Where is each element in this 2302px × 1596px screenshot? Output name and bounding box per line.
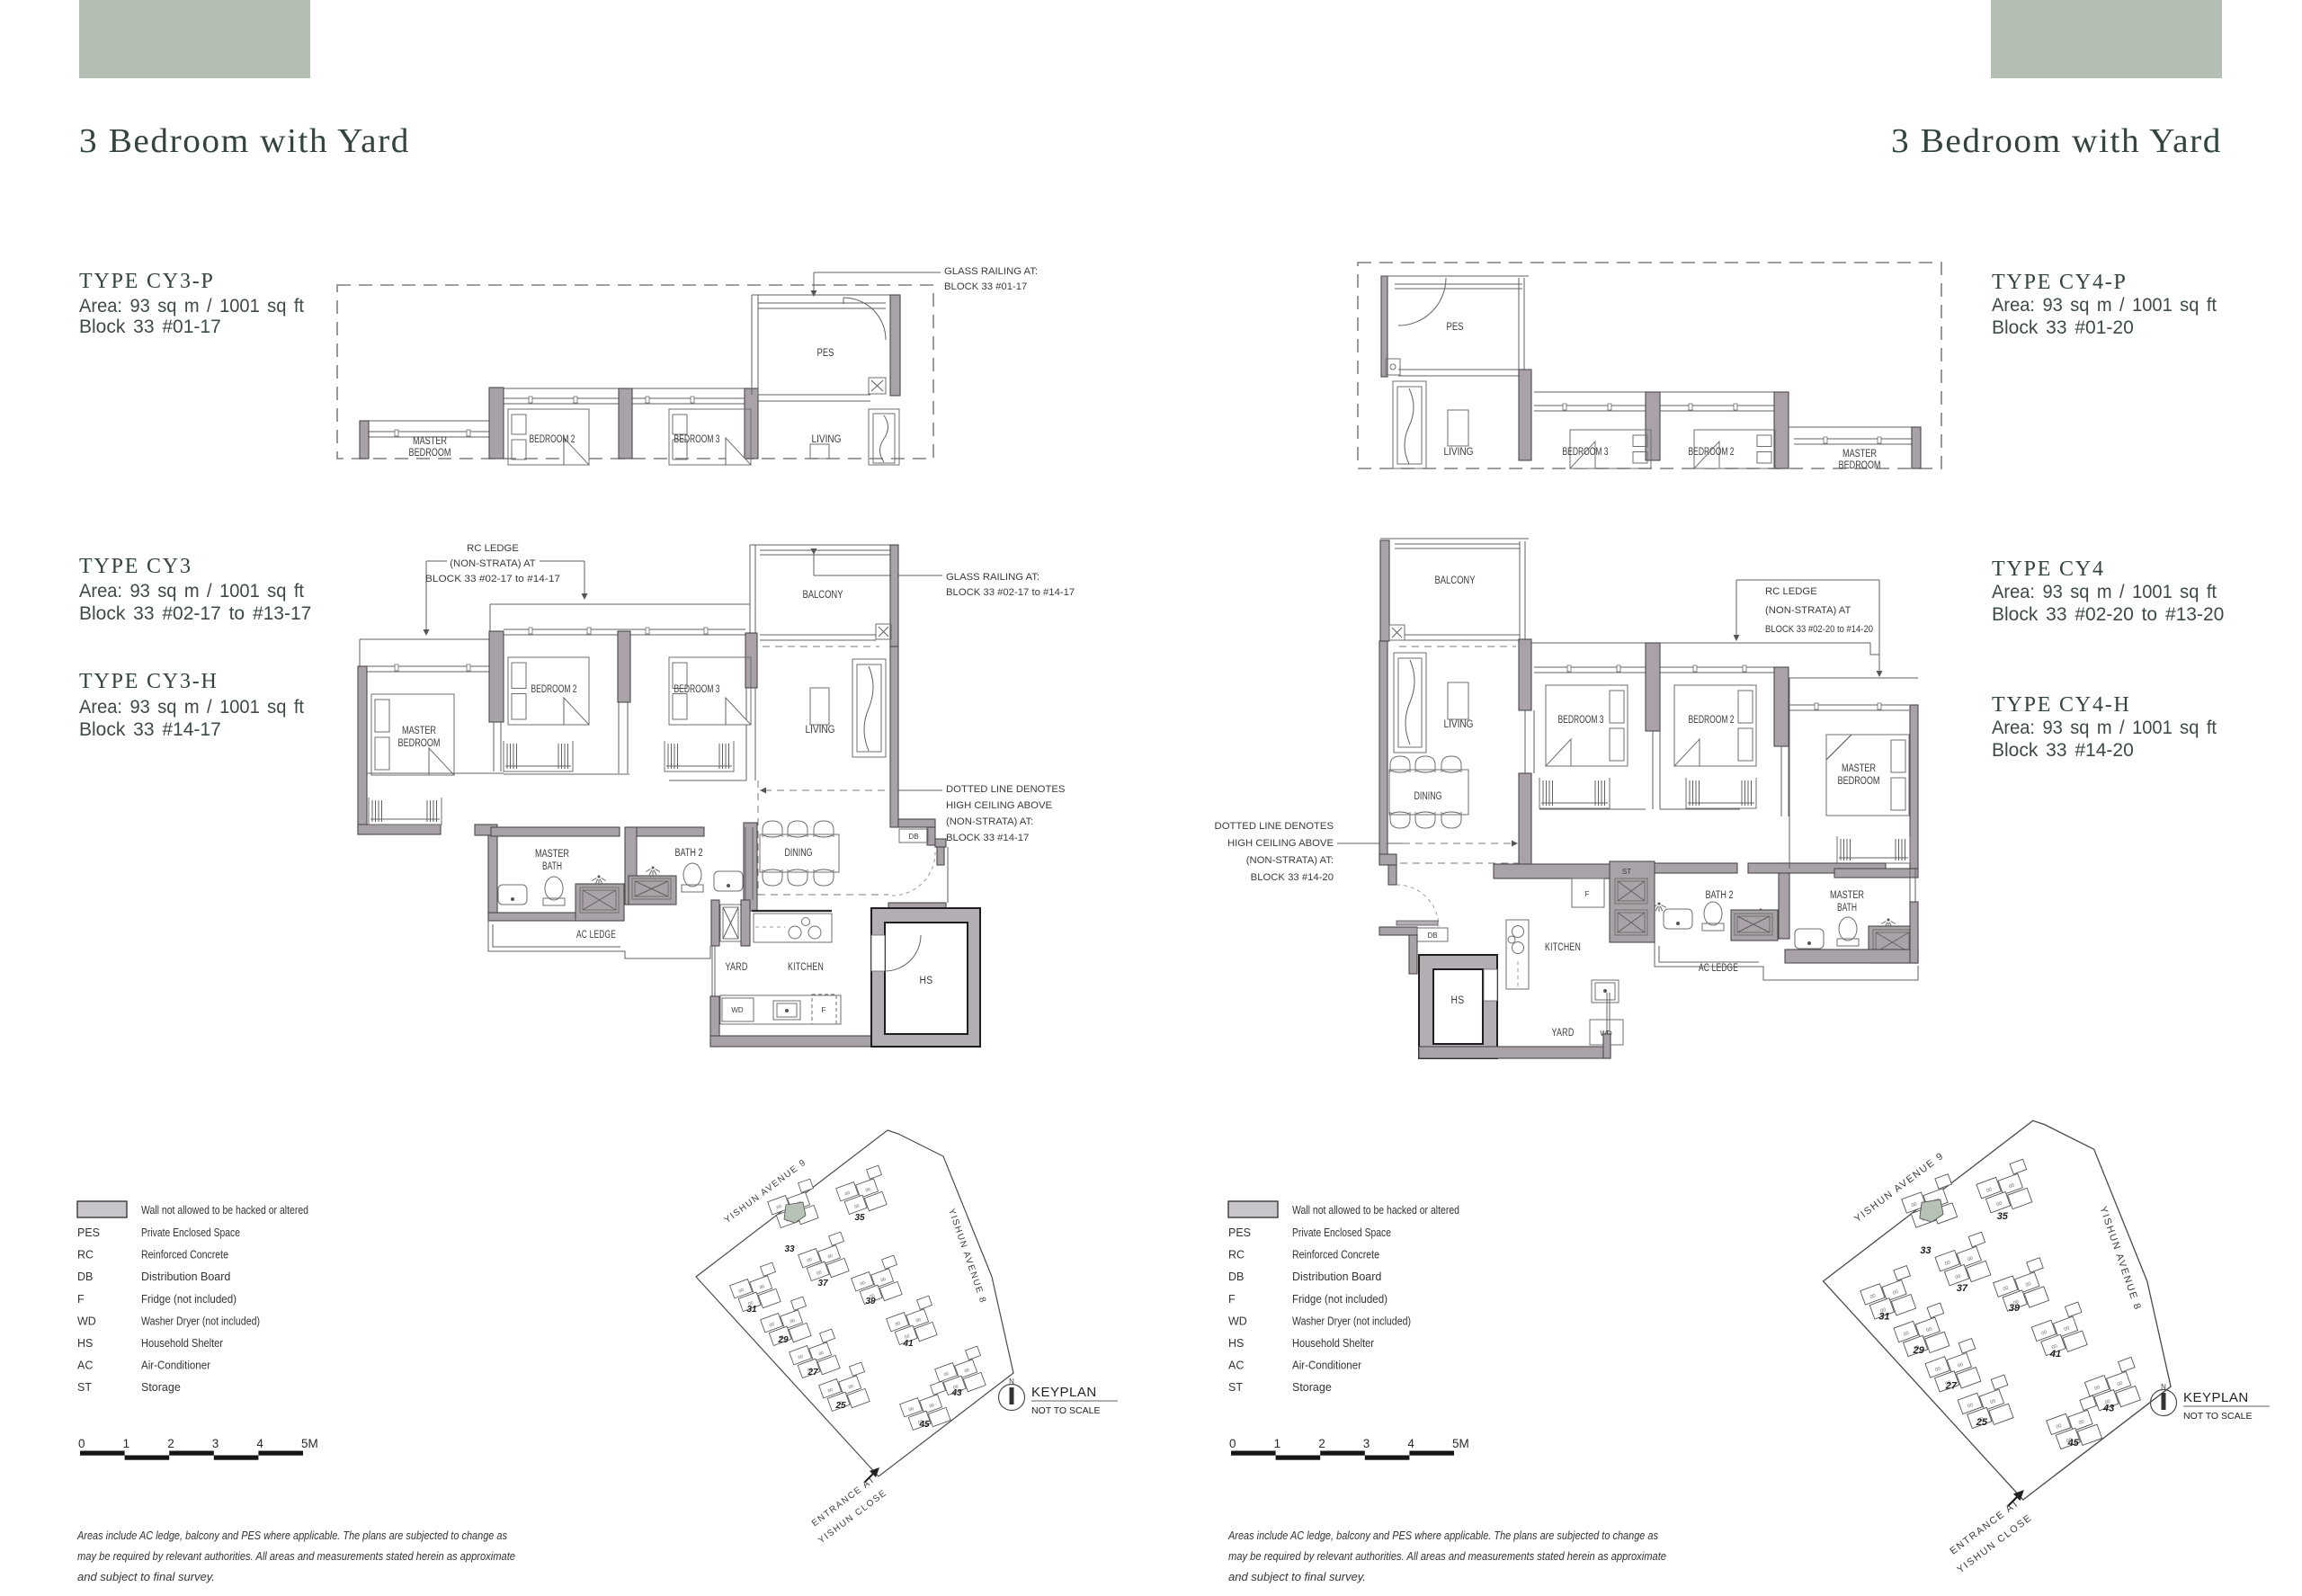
svg-text:PES: PES: [77, 1226, 100, 1239]
svg-text:Reinforced Concrete: Reinforced Concrete: [1292, 1249, 1379, 1262]
svg-text:MASTER: MASTER: [535, 849, 569, 860]
svg-text:DOTTED LINE DENOTES: DOTTED LINE DENOTES: [946, 784, 1066, 795]
svg-text:KITCHEN: KITCHEN: [788, 962, 824, 973]
svg-text:BEDROOM 2: BEDROOM 2: [1689, 447, 1735, 458]
svg-text:BEDROOM 3: BEDROOM 3: [674, 684, 720, 695]
svg-text:DB: DB: [1427, 932, 1437, 940]
svg-text:PES: PES: [1228, 1226, 1251, 1239]
svg-text:F: F: [77, 1293, 85, 1306]
svg-text:MASTER: MASTER: [402, 726, 436, 736]
svg-text:(NON-STRATA) AT:: (NON-STRATA) AT:: [946, 816, 1033, 827]
svg-text:Block 33 #01-20: Block 33 #01-20: [1992, 317, 2134, 338]
svg-text:33: 33: [784, 1244, 795, 1254]
svg-text:Washer Dryer (not included): Washer Dryer (not included): [141, 1315, 260, 1327]
svg-text:1: 1: [1274, 1437, 1281, 1450]
svg-text:BEDROOM: BEDROOM: [409, 448, 451, 459]
svg-text:Block 33 #01-17: Block 33 #01-17: [79, 317, 221, 337]
svg-text:BEDROOM 2: BEDROOM 2: [530, 434, 575, 445]
svg-text:MASTER: MASTER: [1842, 449, 1877, 459]
svg-text:AC: AC: [1228, 1360, 1244, 1372]
svg-text:Distribution Board: Distribution Board: [141, 1271, 230, 1283]
svg-text:AC: AC: [77, 1360, 93, 1372]
svg-text:39: 39: [865, 1297, 876, 1306]
svg-text:GLASS RAILING AT:: GLASS RAILING AT:: [946, 572, 1039, 583]
svg-text:F: F: [1585, 890, 1590, 898]
svg-text:BLOCK 33 #14-20: BLOCK 33 #14-20: [1251, 872, 1334, 883]
svg-text:F: F: [822, 1006, 826, 1014]
svg-text:35: 35: [854, 1213, 865, 1223]
svg-text:Block 33 #14-17: Block 33 #14-17: [79, 719, 221, 740]
svg-text:Private Enclosed Space: Private Enclosed Space: [141, 1226, 240, 1239]
svg-text:BEDROOM 2: BEDROOM 2: [1689, 715, 1735, 726]
svg-text:HS: HS: [1228, 1337, 1244, 1350]
svg-text:Household Shelter: Household Shelter: [1292, 1337, 1374, 1350]
svg-text:HS: HS: [77, 1337, 93, 1350]
svg-text:25: 25: [834, 1401, 846, 1411]
svg-text:DB: DB: [908, 833, 918, 841]
svg-text:BEDROOM 2: BEDROOM 2: [531, 684, 577, 695]
svg-text:BEDROOM: BEDROOM: [1838, 776, 1880, 787]
svg-text:Area: 93 sq m / 1001 sq ft: Area: 93 sq m / 1001 sq ft: [79, 296, 304, 317]
svg-text:5M: 5M: [1452, 1437, 1469, 1450]
svg-text:BEDROOM: BEDROOM: [1839, 460, 1881, 471]
svg-text:BALCONY: BALCONY: [803, 590, 843, 601]
svg-text:N: N: [2161, 1383, 2166, 1391]
svg-text:AC LEDGE: AC LEDGE: [576, 930, 616, 941]
svg-text:Private Enclosed Space: Private Enclosed Space: [1292, 1226, 1391, 1239]
svg-text:LIVING: LIVING: [806, 725, 835, 736]
svg-text:Wall not allowed to be hacked: Wall not allowed to be hacked or altered: [141, 1204, 308, 1217]
svg-text:43: 43: [950, 1388, 962, 1398]
svg-text:PES: PES: [1447, 322, 1464, 333]
svg-text:BLOCK 33 #02-17 to #14-17: BLOCK 33 #02-17 to #14-17: [946, 587, 1075, 598]
svg-text:Air-Conditioner: Air-Conditioner: [141, 1360, 210, 1372]
svg-text:1: 1: [123, 1437, 130, 1450]
svg-text:BATH 2: BATH 2: [675, 848, 703, 859]
svg-text:TYPE CY4-P: TYPE CY4-P: [1992, 271, 2128, 294]
svg-text:HS: HS: [920, 976, 933, 986]
svg-text:Air-Conditioner: Air-Conditioner: [1292, 1360, 1361, 1372]
svg-text:HIGH CEILING ABOVE: HIGH CEILING ABOVE: [1227, 838, 1334, 849]
svg-text:ST: ST: [1622, 868, 1631, 876]
svg-text:Areas include AC ledge, balcon: Areas include AC ledge, balcony and PES …: [1227, 1529, 1658, 1542]
svg-text:27: 27: [807, 1368, 818, 1378]
svg-text:and subject to final survey.: and subject to final survey.: [77, 1570, 215, 1583]
svg-text:MASTER: MASTER: [413, 436, 447, 447]
svg-text:DB: DB: [77, 1271, 93, 1283]
svg-text:0: 0: [78, 1437, 85, 1450]
svg-text:TYPE CY3-H: TYPE CY3-H: [79, 670, 219, 693]
svg-text:BLOCK 33 #14-17: BLOCK 33 #14-17: [946, 833, 1029, 843]
svg-text:DINING: DINING: [1414, 791, 1442, 802]
svg-text:Area: 93 sq m / 1001 sq ft: Area: 93 sq m / 1001 sq ft: [1992, 582, 2217, 602]
svg-text:Wall not allowed to be hacked: Wall not allowed to be hacked or altered: [1292, 1204, 1459, 1217]
svg-text:BALCONY: BALCONY: [1435, 575, 1476, 586]
svg-text:MASTER: MASTER: [1830, 890, 1864, 901]
svg-text:3: 3: [1363, 1437, 1370, 1450]
svg-text:BATH 2: BATH 2: [1706, 890, 1734, 901]
svg-text:41: 41: [902, 1339, 914, 1349]
svg-text:BLOCK 33 #02-20 to #14-20: BLOCK 33 #02-20 to #14-20: [1765, 624, 1873, 635]
svg-text:3 Bedroom with Yard: 3 Bedroom with Yard: [1891, 122, 2222, 160]
svg-text:ST: ST: [1228, 1381, 1243, 1394]
svg-text:Area: 93 sq m / 1001 sq ft: Area: 93 sq m / 1001 sq ft: [1992, 718, 2217, 738]
svg-text:WD: WD: [1228, 1315, 1247, 1327]
svg-text:LIVING: LIVING: [1444, 447, 1474, 458]
svg-text:TYPE CY3: TYPE CY3: [79, 555, 192, 578]
svg-text:LIVING: LIVING: [1444, 719, 1474, 730]
svg-text:BEDROOM 3: BEDROOM 3: [1558, 715, 1604, 726]
svg-text:RC LEDGE: RC LEDGE: [1765, 586, 1817, 597]
svg-text:Area: 93 sq m / 1001 sq ft: Area: 93 sq m / 1001 sq ft: [1992, 295, 2217, 316]
svg-text:BATH: BATH: [1837, 903, 1857, 914]
svg-text:(NON-STRATA) AT: (NON-STRATA) AT: [450, 558, 535, 569]
svg-text:WD: WD: [731, 1006, 744, 1014]
svg-text:Washer Dryer (not included): Washer Dryer (not included): [1292, 1315, 1411, 1327]
svg-text:3 Bedroom with Yard: 3 Bedroom with Yard: [79, 122, 410, 160]
svg-text:0: 0: [1229, 1437, 1236, 1450]
svg-text:BLOCK 33 #02-17 to #14-17: BLOCK 33 #02-17 to #14-17: [425, 574, 560, 584]
svg-text:YARD: YARD: [726, 962, 748, 973]
svg-text:3: 3: [212, 1437, 219, 1450]
svg-text:RC LEDGE: RC LEDGE: [467, 543, 519, 554]
svg-text:29: 29: [777, 1335, 789, 1345]
svg-text:Areas include AC ledge, balcon: Areas include AC ledge, balcony and PES …: [76, 1529, 507, 1542]
svg-text:4: 4: [1407, 1437, 1414, 1450]
svg-text:may be required by relevant au: may be required by relevant authorities.…: [77, 1549, 515, 1563]
svg-text:BEDROOM: BEDROOM: [398, 738, 441, 749]
svg-text:N: N: [1009, 1378, 1014, 1386]
svg-text:Block 33 #02-17 to #13-17: Block 33 #02-17 to #13-17: [79, 603, 311, 624]
svg-text:ST: ST: [77, 1381, 92, 1394]
svg-text:Fridge (not included): Fridge (not included): [141, 1293, 236, 1306]
svg-text:Block 33 #14-20: Block 33 #14-20: [1992, 740, 2134, 761]
svg-text:(NON-STRATA) AT: (NON-STRATA) AT: [1765, 605, 1851, 616]
svg-text:KITCHEN: KITCHEN: [1545, 942, 1581, 953]
svg-text:may be required by relevant au: may be required by relevant authorities.…: [1228, 1549, 1666, 1563]
svg-text:MASTER: MASTER: [1842, 763, 1876, 774]
svg-text:F: F: [1228, 1293, 1236, 1306]
svg-text:and subject to final survey.: and subject to final survey.: [1228, 1570, 1366, 1583]
svg-text:RC: RC: [1228, 1249, 1245, 1262]
svg-text:KEYPLAN: KEYPLAN: [2183, 1390, 2249, 1405]
svg-text:TYPE CY4: TYPE CY4: [1992, 557, 2105, 581]
svg-text:Fridge (not included): Fridge (not included): [1292, 1293, 1387, 1306]
svg-text:BEDROOM 3: BEDROOM 3: [1563, 447, 1609, 458]
svg-text:Distribution Board: Distribution Board: [1292, 1271, 1381, 1283]
svg-text:HIGH CEILING ABOVE: HIGH CEILING ABOVE: [946, 800, 1052, 811]
svg-text:31: 31: [746, 1305, 757, 1315]
svg-text:DOTTED LINE DENOTES: DOTTED LINE DENOTES: [1215, 821, 1334, 832]
svg-text:DB: DB: [1228, 1271, 1244, 1283]
svg-text:Area: 93 sq m / 1001 sq ft: Area: 93 sq m / 1001 sq ft: [79, 697, 304, 718]
svg-text:TYPE CY3-P: TYPE CY3-P: [79, 270, 215, 293]
svg-text:LIVING: LIVING: [812, 434, 842, 445]
svg-text:RC: RC: [77, 1249, 94, 1262]
svg-text:DINING: DINING: [785, 848, 813, 859]
svg-text:HS: HS: [1451, 995, 1465, 1006]
svg-text:GLASS RAILING AT:: GLASS RAILING AT:: [944, 266, 1038, 277]
svg-text:BEDROOM 3: BEDROOM 3: [674, 434, 720, 445]
svg-text:Storage: Storage: [141, 1381, 181, 1394]
svg-text:5M: 5M: [301, 1437, 318, 1450]
svg-text:PES: PES: [817, 348, 834, 359]
svg-text:NOT TO SCALE: NOT TO SCALE: [2183, 1411, 2252, 1422]
svg-text:NOT TO SCALE: NOT TO SCALE: [1031, 1405, 1100, 1416]
svg-text:KEYPLAN: KEYPLAN: [1031, 1385, 1097, 1400]
svg-text:Reinforced Concrete: Reinforced Concrete: [141, 1249, 228, 1262]
svg-text:37: 37: [817, 1279, 828, 1288]
svg-text:BLOCK 33 #01-17: BLOCK 33 #01-17: [944, 281, 1027, 292]
svg-text:TYPE CY4-H: TYPE CY4-H: [1992, 693, 2131, 717]
svg-text:4: 4: [256, 1437, 263, 1450]
svg-text:(NON-STRATA) AT:: (NON-STRATA) AT:: [1246, 855, 1334, 866]
svg-text:Area: 93 sq m / 1001 sq ft: Area: 93 sq m / 1001 sq ft: [79, 581, 304, 602]
svg-text:AC LEDGE: AC LEDGE: [1699, 963, 1738, 974]
svg-text:45: 45: [918, 1420, 930, 1430]
svg-text:2: 2: [1318, 1437, 1325, 1450]
svg-text:BATH: BATH: [542, 861, 562, 872]
svg-text:YARD: YARD: [1552, 1028, 1575, 1039]
svg-text:2: 2: [167, 1437, 174, 1450]
svg-text:WD: WD: [77, 1315, 96, 1327]
svg-text:Block 33 #02-20 to #13-20: Block 33 #02-20 to #13-20: [1992, 604, 2224, 625]
svg-text:Storage: Storage: [1292, 1381, 1332, 1394]
svg-text:Household Shelter: Household Shelter: [141, 1337, 223, 1350]
